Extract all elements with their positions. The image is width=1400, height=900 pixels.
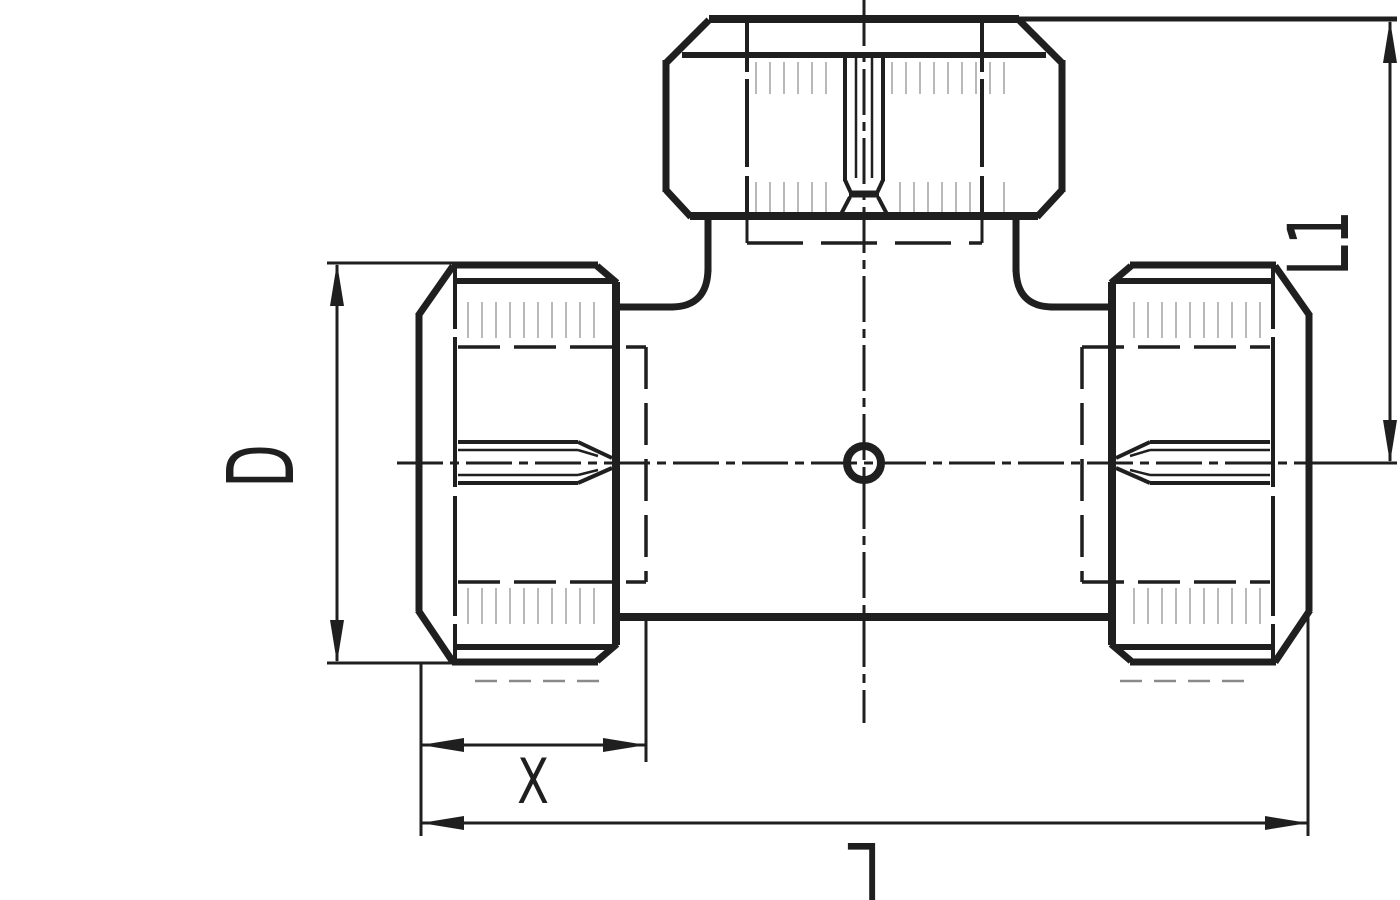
dimension-label-L1: L1 bbox=[1270, 210, 1368, 276]
dimension-label-X: X bbox=[517, 745, 549, 817]
tee-fitting-drawing: D X L L1 bbox=[0, 0, 1400, 900]
dimension-label-D: D bbox=[209, 444, 316, 488]
dimension-label-L: L bbox=[847, 824, 881, 900]
technical-drawing-canvas: D X L L1 bbox=[0, 0, 1400, 900]
